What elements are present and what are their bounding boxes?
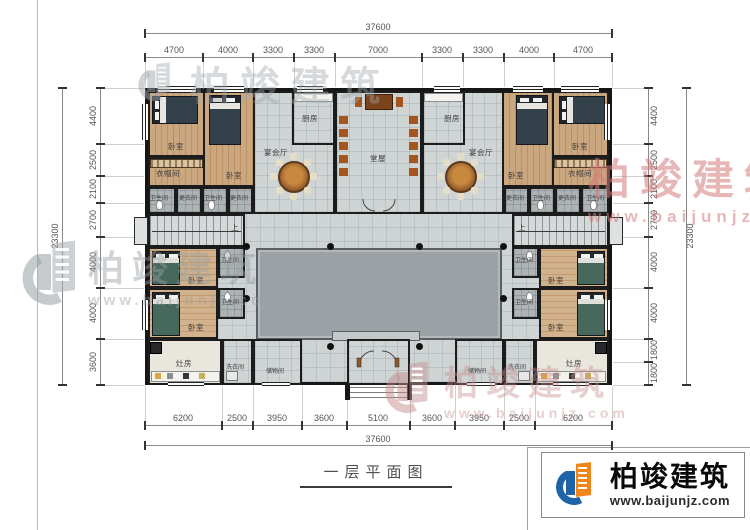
entry-double-door-icon xyxy=(355,348,401,368)
bed-icon xyxy=(152,292,180,336)
window-mark xyxy=(158,86,196,92)
bed-icon xyxy=(152,96,198,124)
bed-icon xyxy=(209,95,241,145)
room-label-bedroom: 卧室 xyxy=(226,170,242,181)
brand-logo-block: 柏竣建筑 www.baijunjz.com xyxy=(541,452,745,518)
dim-right-seg: 2700 xyxy=(649,198,659,242)
dim-ticks-right-segments xyxy=(644,87,653,89)
brand-url: www.baijunjz.com xyxy=(610,493,730,508)
dim-line-bottom-segments xyxy=(145,425,612,426)
dim-ticks-bottom-segments xyxy=(144,421,146,430)
kitchen-counter-icon xyxy=(424,93,463,102)
dim-bottom-seg: 3950 xyxy=(457,413,501,423)
window-mark xyxy=(262,382,290,388)
room-label-bedroom: 卧室 xyxy=(168,141,184,152)
room-label-laundry: 洗衣间 xyxy=(226,362,244,371)
bed-icon xyxy=(516,95,548,145)
dim-bottom-seg: 2500 xyxy=(215,413,259,423)
bed-icon xyxy=(577,251,605,285)
room-label-stove: 灶房 xyxy=(176,358,192,369)
window-mark xyxy=(604,104,610,140)
dim-bottom-seg: 5100 xyxy=(356,413,400,423)
dim-left-seg: 3600 xyxy=(88,340,98,384)
window-mark xyxy=(168,382,204,388)
room-label-bedroom: 卧室 xyxy=(188,275,204,286)
room-label-bath: 卫生间 xyxy=(532,193,550,202)
watermark: 柏竣建筑 www.baijunjz.com xyxy=(588,146,750,227)
dim-bottom-seg: 2500 xyxy=(497,413,541,423)
porch-wall xyxy=(407,385,412,400)
extension-lines-top xyxy=(145,60,146,87)
room-label-dressing: 更衣间 xyxy=(558,193,576,202)
room-label-hall: 堂屋 xyxy=(370,153,386,164)
courtyard xyxy=(256,248,502,340)
dim-left-seg: 4000 xyxy=(88,291,98,335)
range-icon xyxy=(595,342,607,354)
brand-logo-icon xyxy=(556,462,602,508)
counter-items-icon xyxy=(541,373,547,379)
brand-name: 柏竣建筑 xyxy=(610,463,730,491)
window-mark xyxy=(297,86,323,92)
dim-left-seg: 2700 xyxy=(88,198,98,242)
dim-ticks-left-total xyxy=(58,87,67,89)
window-mark xyxy=(142,104,148,140)
hall-chair-icon xyxy=(355,97,362,107)
stairs-up-label: 上 xyxy=(518,222,526,233)
floor-plan-sheet: 37600 4700 4000 3300 3300 7000 3300 3300… xyxy=(0,0,750,530)
hall-chair-icon xyxy=(396,97,403,107)
dim-ticks-top-total xyxy=(144,29,146,38)
room-label-banquet: 宴会厅 xyxy=(264,147,288,158)
window-mark xyxy=(513,86,543,92)
room-label-banquet: 宴会厅 xyxy=(469,147,493,158)
wardrobe-icon xyxy=(554,159,607,168)
round-table-chairs-icon xyxy=(290,173,297,180)
window-mark xyxy=(561,86,599,92)
kitchen-counter-icon xyxy=(294,93,333,102)
extension-lines-bottom xyxy=(145,386,146,424)
room-label-bedroom: 卧室 xyxy=(548,275,564,286)
dim-line-left-segments xyxy=(100,88,101,385)
room-label-laundry: 洗衣间 xyxy=(508,362,526,371)
window-mark xyxy=(434,86,460,92)
room-label-kitchen: 厨房 xyxy=(302,113,318,124)
bed-icon xyxy=(577,292,605,336)
window-mark xyxy=(214,86,244,92)
porch-wall xyxy=(345,385,350,400)
extension-lines-right xyxy=(613,88,647,89)
dim-left-seg: 4000 xyxy=(88,240,98,284)
dim-ticks-bottom-total xyxy=(144,441,146,450)
hall-table-icon xyxy=(365,94,393,110)
dim-bottom-seg: 3600 xyxy=(410,413,454,423)
dim-top-total: 37600 xyxy=(356,22,400,32)
dim-bottom-seg: 3950 xyxy=(255,413,299,423)
bed-icon xyxy=(152,251,180,285)
dim-top-seg: 7000 xyxy=(356,45,400,55)
dim-top-seg: 4000 xyxy=(507,45,551,55)
room-label-bedroom: 卧室 xyxy=(188,322,204,333)
counter-items-icon xyxy=(155,373,161,379)
stove-counter-icon xyxy=(151,371,220,382)
room-label-bath: 卫生间 xyxy=(221,297,239,306)
dim-top-seg: 4000 xyxy=(206,45,250,55)
wardrobe-icon xyxy=(150,159,203,168)
room-label-stove: 灶房 xyxy=(566,358,582,369)
drawing-title: 一层平面图 xyxy=(300,461,452,488)
washer-icon xyxy=(226,371,238,381)
room-label-storage: 储物间 xyxy=(266,366,284,375)
room-label-cloakroom: 衣帽间 xyxy=(568,168,592,179)
dim-top-seg: 4700 xyxy=(152,45,196,55)
hall-double-door-icon xyxy=(360,198,398,213)
window-mark xyxy=(467,382,495,388)
dim-top-seg: 3300 xyxy=(420,45,464,55)
entrance-steps xyxy=(349,387,407,400)
room-label-bath: 卫生间 xyxy=(221,255,239,264)
stairs-right xyxy=(512,214,609,247)
room-label-dressing: 更衣间 xyxy=(230,193,248,202)
dim-ticks-top-segments xyxy=(144,53,146,62)
dim-top-seg: 3300 xyxy=(251,45,295,55)
dim-ticks-right-total xyxy=(682,87,691,89)
dim-line-top-segments xyxy=(145,57,612,58)
room-label-bedroom: 卧室 xyxy=(572,141,588,152)
title-block-left-line xyxy=(527,447,528,530)
room-storage-left xyxy=(253,339,302,385)
window-mark xyxy=(604,300,610,330)
room-label-bath: 卫生间 xyxy=(515,255,533,264)
room-label-bedroom: 卧室 xyxy=(508,170,524,181)
title-block-top-line xyxy=(527,447,750,448)
dim-right-seg: 1800 xyxy=(649,351,659,395)
hall-chair-row-icon xyxy=(409,116,418,124)
hall-chair-row-icon xyxy=(339,116,348,124)
room-label-dressing: 更衣间 xyxy=(179,193,197,202)
range-icon xyxy=(150,342,162,354)
bay-window-right xyxy=(609,217,623,245)
stove-counter-icon xyxy=(537,371,606,382)
dim-right-seg: 4000 xyxy=(649,240,659,284)
dim-left-total: 23300 xyxy=(50,214,60,258)
extension-lines-left xyxy=(103,88,144,89)
room-storage-right xyxy=(455,339,504,385)
room-label-dressing: 更衣间 xyxy=(506,193,524,202)
window-mark xyxy=(553,382,589,388)
dim-ticks-left-segments xyxy=(96,87,105,89)
room-label-bath: 卫生间 xyxy=(515,297,533,306)
room-label-storage: 储物间 xyxy=(468,366,486,375)
dim-line-top-total xyxy=(145,33,612,34)
room-label-bedroom: 卧室 xyxy=(548,322,564,333)
bay-window-left xyxy=(134,217,148,245)
dim-top-seg: 4700 xyxy=(561,45,605,55)
room-label-bath: 卫生间 xyxy=(150,193,168,202)
column-dots xyxy=(243,243,250,250)
dim-right-seg: 4400 xyxy=(649,94,659,138)
room-label-bath: 卫生间 xyxy=(204,193,222,202)
stairs-up-label: 上 xyxy=(231,222,239,233)
room-label-cloakroom: 衣帽间 xyxy=(156,168,180,179)
dim-line-left-total xyxy=(62,88,63,385)
dim-line-bottom-total xyxy=(145,445,612,446)
washer-icon xyxy=(518,371,530,381)
dim-right-total: 23300 xyxy=(685,214,695,258)
dim-top-seg: 3300 xyxy=(461,45,505,55)
window-mark xyxy=(142,300,148,330)
dim-left-seg: 4400 xyxy=(88,94,98,138)
sheet-frame-left-line xyxy=(37,0,38,530)
dim-bottom-seg: 3600 xyxy=(302,413,346,423)
round-table-chairs-icon xyxy=(457,173,464,180)
bed-icon xyxy=(559,96,605,124)
dim-top-seg: 3300 xyxy=(292,45,336,55)
dim-bottom-total: 37600 xyxy=(356,434,400,444)
room-label-kitchen: 厨房 xyxy=(444,113,460,124)
dim-bottom-seg: 6200 xyxy=(551,413,595,423)
watermark-brand-name: 柏竣建筑 xyxy=(588,146,750,207)
dim-bottom-seg: 6200 xyxy=(161,413,205,423)
room-label-bath: 卫生间 xyxy=(586,193,604,202)
